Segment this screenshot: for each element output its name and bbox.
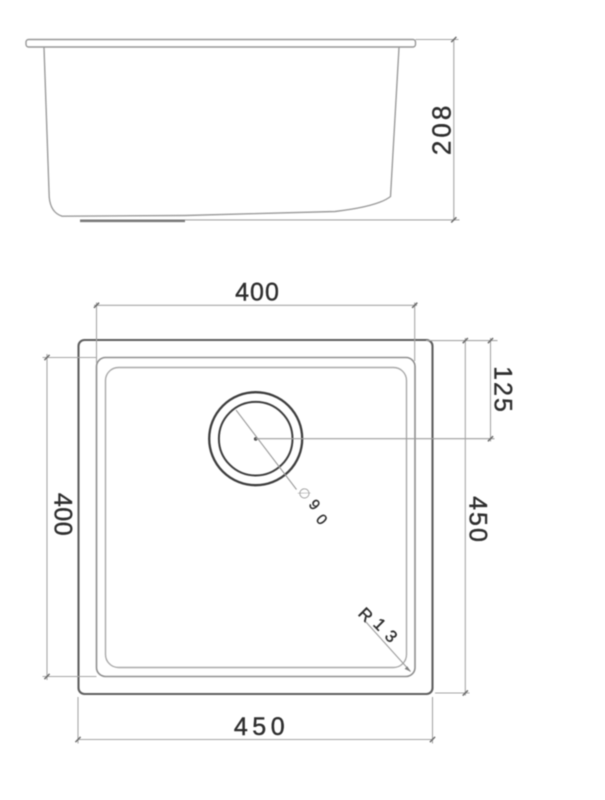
svg-text:208: 208 [427,103,457,155]
svg-text:450: 450 [464,496,492,544]
svg-text:400: 400 [235,279,280,307]
svg-text:1: 1 [369,614,389,634]
svg-text:125: 125 [489,366,517,414]
svg-text:∅: ∅ [294,483,314,503]
svg-text:3: 3 [381,626,401,646]
svg-text:0: 0 [312,511,330,528]
svg-text:9: 9 [305,496,323,513]
svg-text:400: 400 [49,493,77,536]
svg-text:450: 450 [234,713,289,741]
